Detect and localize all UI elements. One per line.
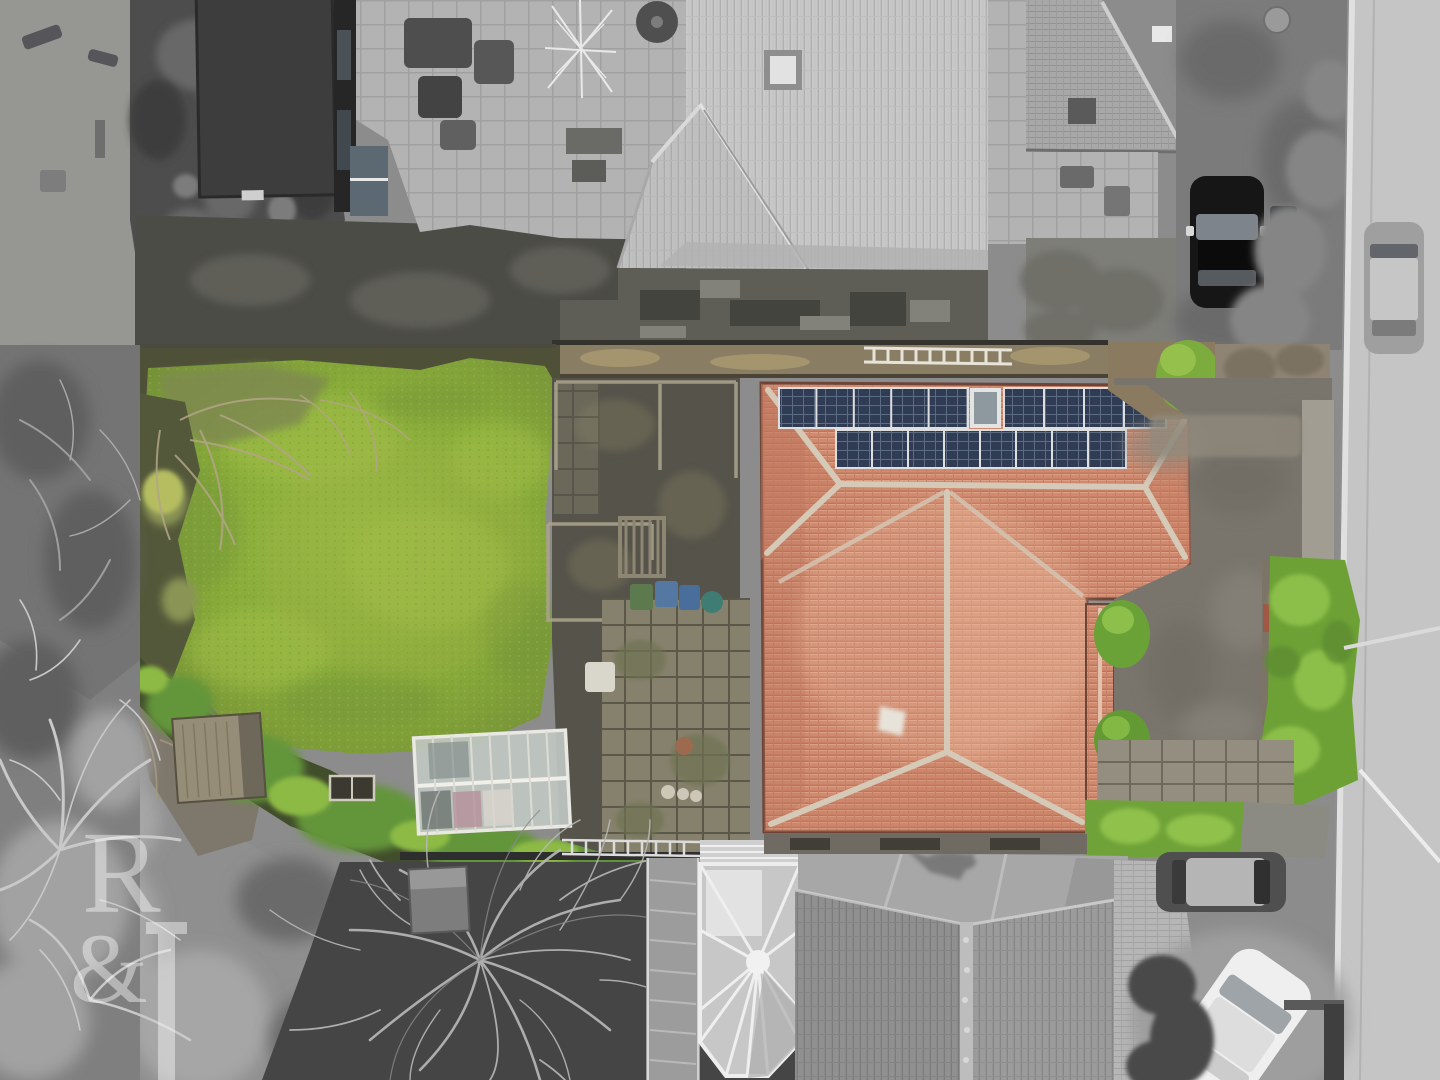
- svg-text:&: &: [70, 913, 148, 1024]
